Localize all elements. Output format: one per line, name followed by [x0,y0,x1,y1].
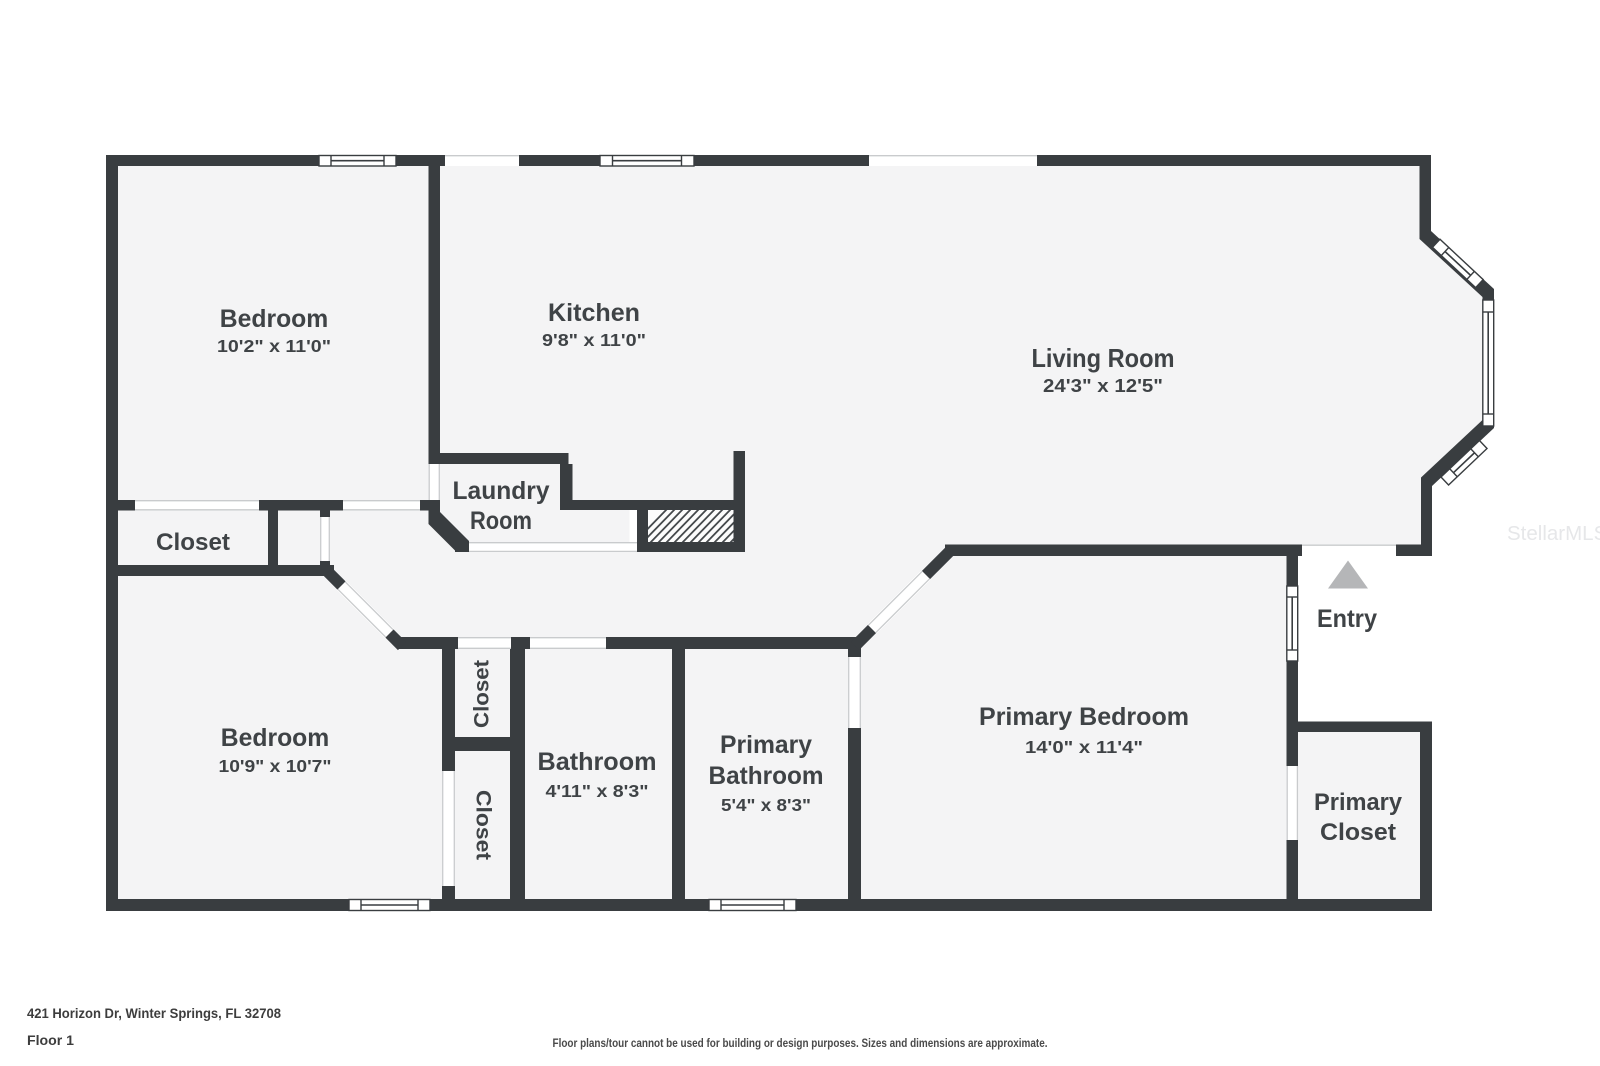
svg-text:Living Room: Living Room [1032,343,1175,373]
svg-text:Closet: Closet [471,660,494,728]
svg-text:4'11" x 8'3": 4'11" x 8'3" [546,781,649,801]
svg-text:Bedroom: Bedroom [220,305,329,333]
svg-text:Closet: Closet [1320,819,1396,846]
svg-text:5'4" x 8'3": 5'4" x 8'3" [721,795,811,815]
svg-text:24'3" x 12'5": 24'3" x 12'5" [1043,376,1163,396]
svg-text:Room: Room [470,507,532,535]
svg-text:Kitchen: Kitchen [548,299,640,327]
svg-text:Bathroom: Bathroom [538,748,657,776]
svg-text:Entry: Entry [1317,605,1377,633]
svg-text:Bedroom: Bedroom [221,724,330,752]
svg-text:Floor plans/tour cannot be use: Floor plans/tour cannot be used for buil… [553,1036,1048,1050]
svg-text:9'8" x 11'0": 9'8" x 11'0" [542,330,646,350]
svg-text:StellarMLS: StellarMLS [1507,522,1600,545]
svg-text:Primary Bedroom: Primary Bedroom [979,703,1189,731]
svg-text:421 Horizon Dr, Winter Springs: 421 Horizon Dr, Winter Springs, FL 32708 [27,1005,281,1021]
svg-text:Primary: Primary [1314,789,1403,816]
svg-text:Closet: Closet [156,529,230,556]
svg-text:Bathroom: Bathroom [709,762,824,790]
svg-text:10'2" x 11'0": 10'2" x 11'0" [217,336,331,356]
svg-text:Primary: Primary [720,731,812,759]
svg-text:14'0" x 11'4": 14'0" x 11'4" [1025,737,1143,757]
svg-text:Laundry: Laundry [453,477,550,505]
svg-text:Closet: Closet [472,790,495,860]
svg-text:10'9" x 10'7": 10'9" x 10'7" [219,756,332,776]
svg-text:Floor 1: Floor 1 [27,1032,74,1048]
